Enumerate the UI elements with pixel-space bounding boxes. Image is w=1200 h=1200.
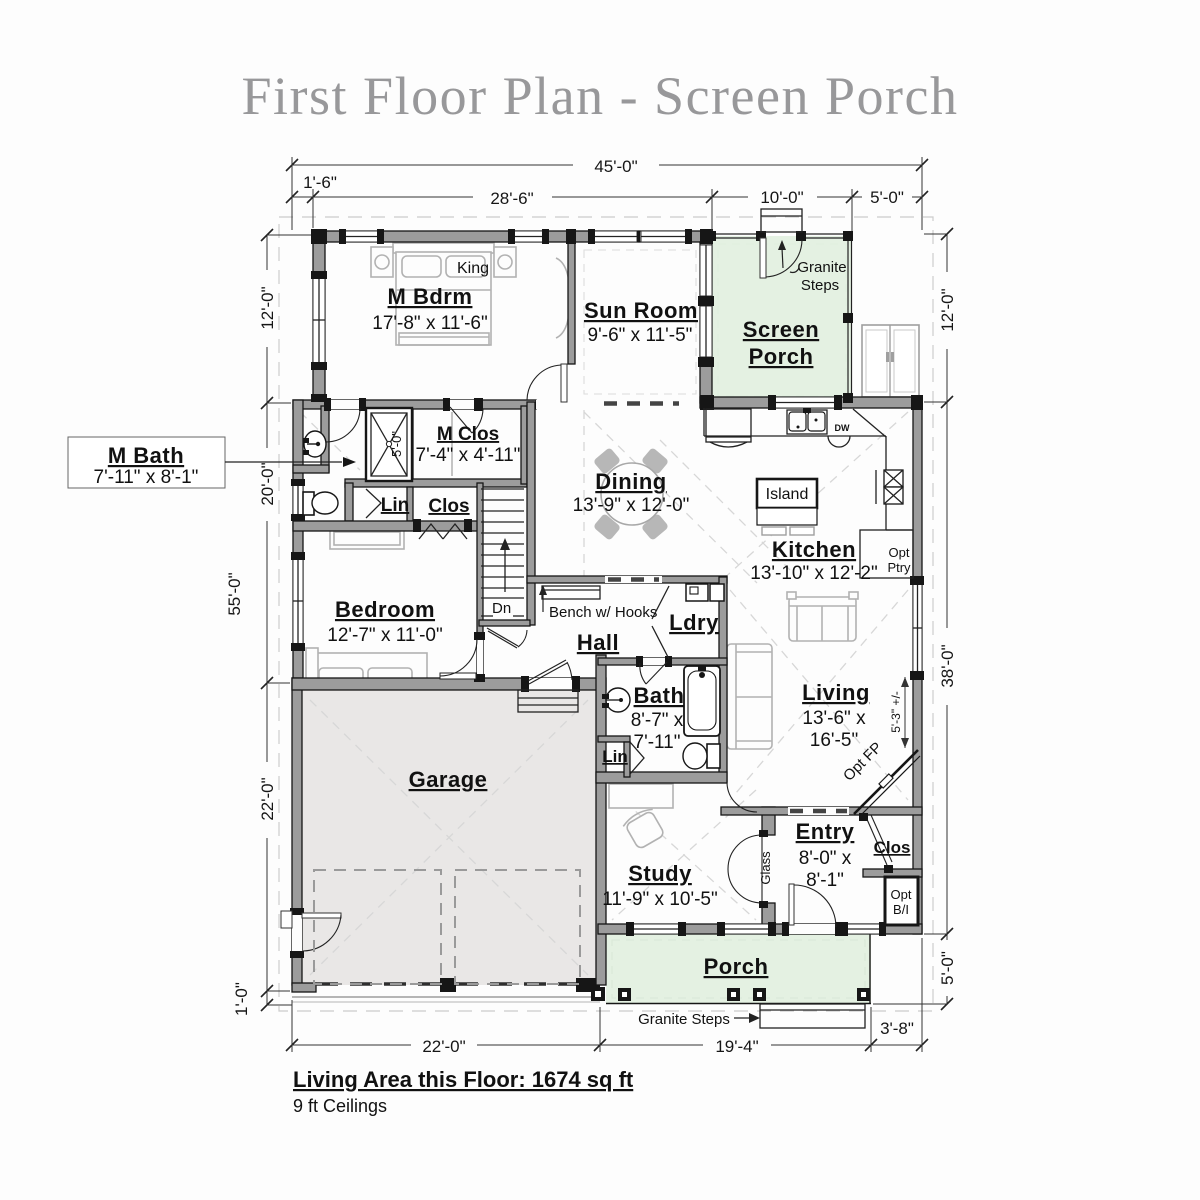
svg-text:Sun Room: Sun Room xyxy=(584,298,698,323)
svg-text:5'-3" +/-: 5'-3" +/- xyxy=(889,691,903,733)
svg-text:13'-10" x 12'-2": 13'-10" x 12'-2" xyxy=(750,563,877,584)
svg-text:13'-9" x 12'-0": 13'-9" x 12'-0" xyxy=(573,495,690,516)
svg-text:Entry: Entry xyxy=(796,819,855,844)
svg-text:12'-0": 12'-0" xyxy=(258,286,277,329)
svg-text:Porch: Porch xyxy=(704,954,769,979)
svg-text:King: King xyxy=(457,260,489,277)
svg-text:1'-0": 1'-0" xyxy=(232,982,251,1016)
svg-text:8'-0" x: 8'-0" x xyxy=(799,848,852,869)
svg-text:3'-8": 3'-8" xyxy=(880,1019,914,1038)
svg-text:Opt: Opt xyxy=(891,887,912,902)
svg-text:Living Area this Floor: 1674 s: Living Area this Floor: 1674 sq ft xyxy=(293,1067,634,1092)
svg-text:Lin: Lin xyxy=(602,747,628,766)
svg-text:12'-7" x 11'-0": 12'-7" x 11'-0" xyxy=(327,625,442,646)
svg-text:M Bath: M Bath xyxy=(108,443,184,468)
svg-text:20'-0": 20'-0" xyxy=(258,462,277,505)
svg-text:1'-6": 1'-6" xyxy=(303,173,337,192)
svg-text:Dining: Dining xyxy=(595,469,666,494)
svg-text:8'-7" x: 8'-7" x xyxy=(631,710,684,731)
svg-text:38'-0": 38'-0" xyxy=(938,644,957,687)
svg-text:Island: Island xyxy=(766,486,809,503)
svg-text:Dn: Dn xyxy=(492,600,511,617)
svg-text:Living: Living xyxy=(802,680,870,705)
svg-text:Porch: Porch xyxy=(749,344,814,369)
svg-text:5'-0": 5'-0" xyxy=(870,188,904,207)
svg-text:Ldry: Ldry xyxy=(669,610,719,635)
svg-text:Bench w/ Hooks: Bench w/ Hooks xyxy=(549,604,657,621)
svg-text:7'-4" x 4'-11": 7'-4" x 4'-11" xyxy=(416,445,521,466)
svg-text:11'-9" x 10'-5": 11'-9" x 10'-5" xyxy=(602,889,717,910)
svg-text:Clos: Clos xyxy=(428,496,469,517)
svg-text:5'-0": 5'-0" xyxy=(938,951,957,985)
svg-text:Bedroom: Bedroom xyxy=(335,597,435,622)
svg-text:Garage: Garage xyxy=(409,767,488,792)
svg-text:Clos: Clos xyxy=(874,838,911,857)
svg-text:Study: Study xyxy=(628,861,692,886)
svg-text:Kitchen: Kitchen xyxy=(772,537,856,562)
svg-text:13'-6" x: 13'-6" x xyxy=(802,708,866,729)
svg-text:19'-4": 19'-4" xyxy=(715,1037,758,1056)
svg-text:12'-0": 12'-0" xyxy=(938,288,957,331)
svg-text:DW: DW xyxy=(835,423,850,433)
svg-text:7'-11" x 8'-1": 7'-11" x 8'-1" xyxy=(94,467,199,488)
svg-text:55'-0": 55'-0" xyxy=(225,572,244,615)
svg-text:5'-0": 5'-0" xyxy=(389,431,404,457)
svg-text:Glass: Glass xyxy=(758,851,773,885)
svg-text:Opt: Opt xyxy=(889,545,910,560)
svg-text:Bath: Bath xyxy=(634,683,685,708)
svg-text:Hall: Hall xyxy=(577,630,619,655)
svg-text:9 ft Ceilings: 9 ft Ceilings xyxy=(293,1096,387,1116)
svg-text:9'-6" x 11'-5": 9'-6" x 11'-5" xyxy=(588,325,693,346)
svg-text:28'-6": 28'-6" xyxy=(490,189,533,208)
svg-text:M Clos: M Clos xyxy=(437,424,499,445)
svg-text:M Bdrm: M Bdrm xyxy=(388,284,473,309)
svg-text:16'-5": 16'-5" xyxy=(810,730,858,751)
svg-text:Screen: Screen xyxy=(743,317,819,342)
svg-text:22'-0": 22'-0" xyxy=(258,777,277,820)
svg-text:22'-0": 22'-0" xyxy=(422,1037,465,1056)
svg-text:Granite: Granite xyxy=(797,259,846,276)
svg-text:Ptry: Ptry xyxy=(887,560,911,575)
svg-text:First Floor Plan - Screen Porc: First Floor Plan - Screen Porch xyxy=(242,66,959,126)
svg-text:8'-1": 8'-1" xyxy=(806,870,844,891)
svg-text:10'-0": 10'-0" xyxy=(760,188,803,207)
svg-text:Lin: Lin xyxy=(381,495,410,516)
svg-text:45'-0": 45'-0" xyxy=(594,157,637,176)
svg-text:Steps: Steps xyxy=(801,277,839,294)
svg-text:B/I: B/I xyxy=(893,902,909,917)
svg-text:7'-11": 7'-11" xyxy=(634,732,681,753)
svg-text:Granite Steps: Granite Steps xyxy=(638,1011,730,1028)
svg-text:17'-8" x 11'-6": 17'-8" x 11'-6" xyxy=(372,313,487,334)
